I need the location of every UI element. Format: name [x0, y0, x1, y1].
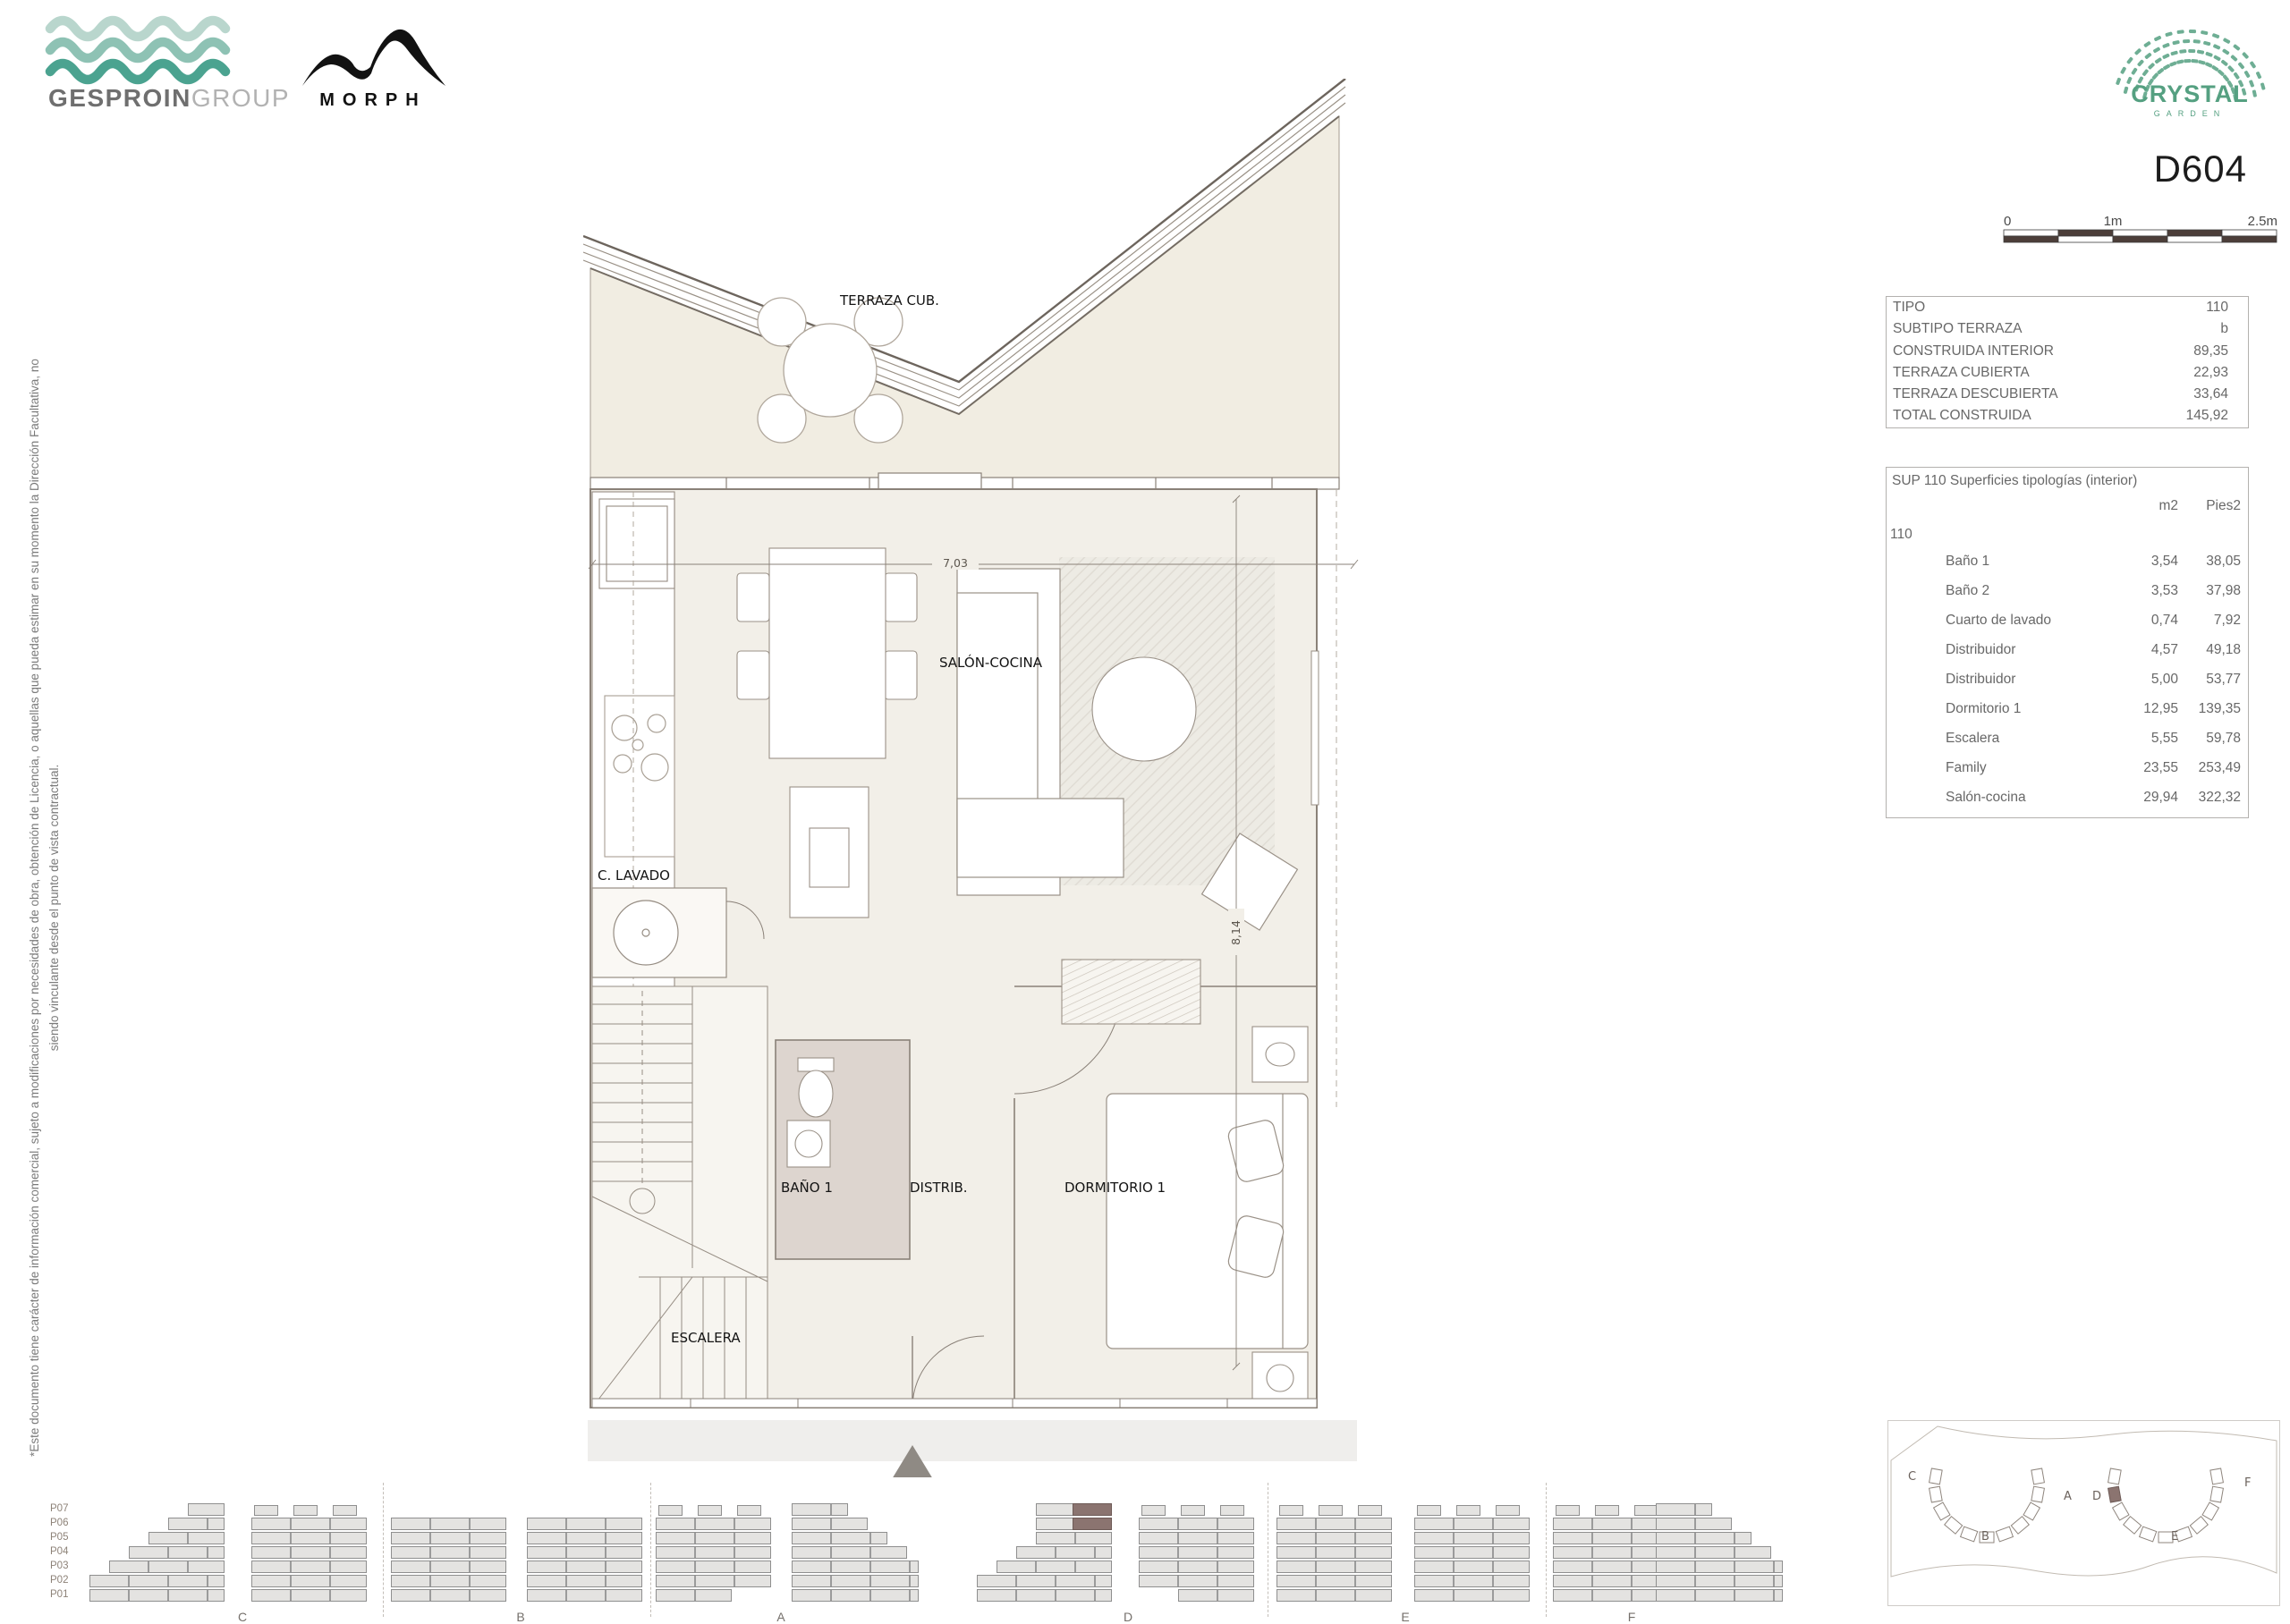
site-building-block — [2011, 1517, 2029, 1534]
elevation-cell — [656, 1589, 732, 1602]
dome-lattice-diamond — [2237, 62, 2244, 70]
elevation-cell — [1656, 1575, 1783, 1587]
elevation-cell — [656, 1518, 771, 1530]
elevation-cell — [1276, 1561, 1392, 1573]
elevation-cell — [1414, 1589, 1530, 1602]
label-distrib: DISTRIB. — [910, 1180, 968, 1196]
wardrobe-icon — [1062, 960, 1200, 1024]
areas-m2: 0,74 — [2096, 613, 2178, 629]
elevation-cell — [658, 1505, 683, 1516]
block-group-label: F — [1628, 1610, 1636, 1624]
block-separator — [383, 1483, 384, 1617]
elevation-cell — [251, 1518, 367, 1530]
elevation-cell — [391, 1561, 506, 1573]
dome-lattice-diamond — [2170, 50, 2178, 55]
elevation-cell — [89, 1589, 225, 1602]
site-building-block — [2210, 1486, 2224, 1502]
elevation-cell — [168, 1518, 225, 1530]
elevation-cell — [1556, 1505, 1580, 1516]
summary-value: 110 — [2112, 297, 2248, 318]
elevation-cell — [1139, 1561, 1254, 1573]
dome-lattice-diamond — [2201, 30, 2209, 35]
site-building-block — [2108, 1468, 2122, 1484]
site-building-block — [1930, 1468, 1943, 1484]
summary-row: TOTAL CONSTRUIDA145,92 — [1887, 405, 2248, 427]
elevation-cell — [1414, 1518, 1530, 1530]
elevation-cell — [251, 1561, 367, 1573]
gesproin-waves-icon — [50, 21, 225, 80]
site-building-block — [2202, 1502, 2218, 1520]
block-separator — [650, 1483, 651, 1617]
dome-lattice-diamond — [2163, 63, 2171, 70]
plan-shadow — [588, 1420, 1357, 1461]
summary-label: TOTAL CONSTRUIDA — [1887, 405, 2112, 427]
elevation-cell — [1414, 1546, 1530, 1559]
elevation-cell — [527, 1532, 642, 1544]
label-bano: BAÑO 1 — [781, 1179, 833, 1196]
areas-col-m2: m2 — [2096, 498, 2178, 514]
label-terraza: TERRAZA CUB. — [839, 292, 939, 309]
summary-value: 145,92 — [2112, 405, 2248, 427]
areas-room-name: Escalera — [1946, 731, 2096, 747]
elevation-cell — [977, 1589, 1112, 1602]
dome-lattice-diamond — [2137, 59, 2144, 67]
scale-segments — [2004, 230, 2277, 242]
elevation-cell — [656, 1546, 771, 1559]
dome-lattice-diamond — [2154, 35, 2162, 41]
elevation-cell — [1414, 1532, 1530, 1544]
elevation-cell — [792, 1546, 907, 1559]
dome-lattice-diamond — [2213, 55, 2221, 61]
crystal-subname: GARDEN — [2154, 109, 2226, 118]
morph-mountain-icon — [302, 30, 445, 86]
elevation-cell — [1178, 1589, 1254, 1602]
elevation-cell — [698, 1505, 722, 1516]
areas-pies2: 59,78 — [2178, 731, 2248, 747]
summary-row: TIPO110 — [1887, 297, 2248, 318]
block-group-label: D — [1124, 1610, 1132, 1624]
areas-table-header: m2 Pies2 — [1887, 491, 2248, 520]
dome-lattice-diamond — [2162, 53, 2170, 59]
dome-lattice-diamond — [2188, 49, 2195, 53]
site-building-block — [2140, 1527, 2157, 1542]
elevation-cell — [737, 1505, 761, 1516]
elevation-cell — [792, 1561, 919, 1573]
toilet-icon — [798, 1058, 834, 1117]
areas-pies2: 49,18 — [2178, 642, 2248, 658]
floor-label: P04 — [50, 1546, 68, 1557]
areas-col-pies2: Pies2 — [2178, 498, 2248, 514]
areas-room-name: Baño 2 — [1946, 583, 2096, 599]
areas-room-name: Baño 1 — [1946, 554, 2096, 570]
elevation-cell — [527, 1589, 642, 1602]
elevation-cell — [1417, 1505, 1441, 1516]
site-highlighted-unit — [2108, 1486, 2122, 1502]
dome-lattice-diamond — [2205, 52, 2213, 57]
dome-lattice-diamond — [2260, 82, 2266, 90]
block-group-label: B — [516, 1610, 524, 1624]
elevation-cell — [391, 1546, 506, 1559]
elevation-cell — [977, 1575, 1112, 1587]
site-block-label: A — [2064, 1490, 2072, 1503]
dome-lattice-diamond — [2176, 59, 2184, 64]
summary-value: 33,64 — [2112, 384, 2248, 405]
dome-lattice-diamond — [2154, 57, 2162, 64]
elevation-cell — [1496, 1505, 1520, 1516]
elevation-cell — [656, 1532, 771, 1544]
summary-value: 89,35 — [2112, 341, 2248, 362]
dome-lattice-diamond — [2183, 39, 2190, 43]
elevation-cell — [391, 1532, 506, 1544]
floor-label: P07 — [50, 1503, 68, 1514]
areas-row: Dormitorio 112,95139,35 — [1887, 694, 2248, 723]
summary-label: TERRAZA CUBIERTA — [1887, 362, 2112, 384]
site-labels: CBADEF — [1908, 1470, 2251, 1544]
elevation-cell — [1358, 1505, 1382, 1516]
elevation-cell — [792, 1589, 919, 1602]
elevation-cell — [1220, 1505, 1244, 1516]
elevation-cell — [527, 1575, 642, 1587]
elevation-cell — [527, 1518, 642, 1530]
highlighted-unit-cell — [1073, 1518, 1112, 1530]
elevation-cell — [1553, 1532, 1668, 1544]
label-salon: SALÓN-COCINA — [939, 654, 1043, 671]
elevation-cell — [1656, 1561, 1783, 1573]
highlighted-unit-cell — [1073, 1503, 1112, 1516]
elevation-cell — [1656, 1503, 1712, 1516]
dome-lattice-diamond — [2249, 80, 2255, 88]
dome-lattice-diamond — [2233, 44, 2241, 51]
unit-code: D604 — [2154, 148, 2247, 190]
elevation-cell — [1553, 1575, 1668, 1587]
elevation-cell — [1139, 1532, 1254, 1544]
elevation-cell — [1414, 1561, 1530, 1573]
site-building-block — [1934, 1502, 1950, 1520]
summary-row: TERRAZA CUBIERTA22,93 — [1887, 362, 2248, 384]
elevation-cell — [792, 1532, 887, 1544]
dome-lattice-diamond — [2142, 69, 2149, 77]
areas-unit-group: 110 — [1887, 520, 2248, 546]
coffee-table-icon — [1092, 657, 1196, 761]
elevation-cell — [391, 1589, 506, 1602]
disclaimer-line1: *Este documento tiene carácter de inform… — [25, 201, 45, 1614]
site-building-block — [2124, 1517, 2142, 1534]
elevation-cell — [1276, 1575, 1392, 1587]
dome-lattice-diamond — [2134, 48, 2142, 55]
label-dormitorio: DORMITORIO 1 — [1064, 1180, 1166, 1196]
floor-label: P01 — [50, 1589, 68, 1600]
areas-m2: 3,53 — [2096, 583, 2178, 599]
elevation-cell — [527, 1546, 642, 1559]
dome-lattice-diamond — [2184, 59, 2191, 63]
dome-lattice-diamond — [2124, 86, 2129, 94]
dome-lattice-diamond — [2212, 33, 2220, 38]
dome-lattice-diamond — [2230, 55, 2238, 62]
summary-label: TERRAZA DESCUBIERTA — [1887, 384, 2112, 405]
dim-width: 7,03 — [943, 556, 968, 570]
elevation-cell — [293, 1505, 318, 1516]
dome-lattice-diamond — [2222, 48, 2230, 55]
summary-label: SUBTIPO TERRAZA — [1887, 318, 2112, 340]
areas-m2: 23,55 — [2096, 760, 2178, 776]
dome-lattice-diamond — [2220, 59, 2228, 66]
crystal-name: CRYSTAL — [2131, 80, 2249, 107]
site-block-label: B — [1981, 1530, 1989, 1544]
dome-lattice-diamond — [2169, 61, 2177, 67]
scale-2-5m: 2.5m — [2248, 215, 2277, 229]
elevation-cell — [251, 1589, 367, 1602]
elevation-cell — [1553, 1546, 1668, 1559]
areas-room-name: Family — [1946, 760, 2096, 776]
dome-lattice-diamond — [2213, 44, 2221, 50]
elevation-cell — [1456, 1505, 1480, 1516]
elevation-cell — [188, 1503, 225, 1516]
morph-logo: MORPH — [295, 14, 452, 114]
dome-lattice-diamond — [2227, 65, 2235, 73]
elevation-cell — [89, 1575, 225, 1587]
dome-lattice-diamond — [2203, 41, 2211, 47]
floor-label: P02 — [50, 1575, 68, 1586]
site-building-block — [1961, 1527, 1978, 1542]
elevation-cell — [129, 1546, 225, 1559]
areas-table-title: SUP 110 Superficies tipologías (interior… — [1887, 468, 2248, 491]
dome-lattice-diamond — [2191, 59, 2198, 63]
areas-m2: 4,57 — [2096, 642, 2178, 658]
site-building-block — [2113, 1502, 2129, 1520]
elevation-cell — [1276, 1546, 1392, 1559]
elevation-cell — [527, 1561, 642, 1573]
summary-row: TERRAZA DESCUBIERTA33,64 — [1887, 384, 2248, 405]
dome-lattice-diamond — [2252, 89, 2258, 97]
areas-row: Escalera5,5559,78 — [1887, 723, 2248, 753]
elevation-cell — [391, 1518, 506, 1530]
dome-lattice-diamond — [2197, 49, 2205, 54]
elevation-cell — [251, 1532, 367, 1544]
elevation-cell — [1276, 1589, 1392, 1602]
elevation-cell — [1279, 1505, 1303, 1516]
floor-label: P05 — [50, 1532, 68, 1543]
elevation-cell — [656, 1561, 771, 1573]
laundry-room — [592, 888, 726, 977]
block-separator — [1546, 1483, 1547, 1617]
summary-row: CONSTRUIDA INTERIOR89,35 — [1887, 341, 2248, 362]
areas-room-name: Cuarto de lavado — [1946, 613, 2096, 629]
elevation-cell — [1276, 1532, 1392, 1544]
elevation-cell — [1141, 1505, 1166, 1516]
site-map: CBADEF — [1887, 1420, 2280, 1606]
dome-lattice-diamond — [2179, 49, 2186, 54]
elevation-cell — [1595, 1505, 1619, 1516]
elevation-cell — [1139, 1518, 1254, 1530]
site-building-block — [2031, 1468, 2045, 1484]
elevation-cell — [792, 1503, 848, 1516]
dome-lattice-diamond — [2250, 61, 2257, 69]
site-block-label: C — [1908, 1470, 1916, 1484]
disclaimer: *Este documento tiene carácter de inform… — [25, 201, 82, 1614]
areas-m2: 29,94 — [2096, 790, 2178, 806]
dome-lattice-diamond — [2176, 30, 2184, 34]
elevation-cell — [1276, 1518, 1392, 1530]
site-building-block — [2210, 1468, 2224, 1484]
summary-label: CONSTRUIDA INTERIOR — [1887, 341, 2112, 362]
dome-lattice-diamond — [2211, 65, 2219, 72]
elevation-cell — [1319, 1505, 1343, 1516]
elevations: P07P06P05P04P03P02P01CBADEF — [0, 1476, 1879, 1619]
elevation-cell — [148, 1532, 225, 1544]
areas-row: Distribuidor4,5749,18 — [1887, 635, 2248, 664]
site-building-block — [1945, 1517, 1963, 1534]
site-building-block — [1996, 1527, 2013, 1542]
dome-lattice-diamond — [2198, 60, 2206, 65]
summary-row: SUBTIPO TERRAZAb — [1887, 318, 2248, 340]
elevation-cell — [1656, 1546, 1771, 1559]
areas-pies2: 38,05 — [2178, 554, 2248, 570]
block-group-label: C — [238, 1610, 247, 1624]
site-building-block — [2023, 1502, 2040, 1520]
elevation-cell — [1181, 1505, 1205, 1516]
site-block-label: F — [2244, 1476, 2251, 1490]
elevation-cell — [1139, 1546, 1254, 1559]
gesproin-name: GESPROINGROUP — [48, 84, 290, 112]
elevation-cell — [1139, 1575, 1254, 1587]
window-right — [1311, 651, 1319, 805]
areas-row: Cuarto de lavado0,747,92 — [1887, 605, 2248, 635]
elevation-cell — [109, 1561, 225, 1573]
elevation-cell — [792, 1575, 919, 1587]
dome-lattice-diamond — [2165, 31, 2173, 37]
areas-table: SUP 110 Superficies tipologías (interior… — [1886, 467, 2249, 818]
dome-lattice-diamond — [2242, 52, 2249, 60]
elevation-cell — [251, 1575, 367, 1587]
elevation-cell — [1036, 1532, 1112, 1544]
elevation-cell — [1656, 1589, 1783, 1602]
elevation-cell — [1553, 1518, 1668, 1530]
areas-pies2: 253,49 — [2178, 760, 2248, 776]
areas-m2: 12,95 — [2096, 701, 2178, 717]
crystal-garden-logo: CRYSTAL GARDEN — [2109, 13, 2270, 132]
areas-pies2: 53,77 — [2178, 672, 2248, 688]
site-building-block — [1930, 1486, 1943, 1502]
floor-plan: TERRAZA CUB. C. LAVADO — [583, 79, 1365, 1477]
elevation-cell — [254, 1505, 278, 1516]
site-block-label: E — [2171, 1530, 2178, 1544]
dome-lattice-diamond — [2233, 72, 2240, 80]
dome-lattice-diamond — [2131, 67, 2138, 75]
areas-row: Baño 23,5337,98 — [1887, 576, 2248, 605]
floor-label: P06 — [50, 1518, 68, 1528]
elevation-cell — [1016, 1546, 1112, 1559]
areas-row: Family23,55253,49 — [1887, 753, 2248, 782]
areas-row: Salón-cocina29,94322,32 — [1887, 782, 2248, 812]
label-lavado: C. LAVADO — [598, 867, 670, 884]
elevation-cell — [792, 1518, 868, 1530]
scale-1m: 1m — [2104, 215, 2123, 229]
dome-lattice-diamond — [2189, 30, 2196, 33]
elevation-cell — [1414, 1575, 1530, 1587]
areas-room-name: Distribuidor — [1946, 642, 2096, 658]
areas-pies2: 7,92 — [2178, 613, 2248, 629]
elevation-cell — [1634, 1505, 1658, 1516]
dome-lattice-diamond — [2126, 56, 2133, 64]
dim-height: 8,14 — [1229, 920, 1243, 945]
scale-0: 0 — [2004, 215, 2011, 229]
areas-m2: 3,54 — [2096, 554, 2178, 570]
summary-value: b — [2112, 318, 2248, 340]
areas-room-name: Dormitorio 1 — [1946, 701, 2096, 717]
dome-lattice-diamond — [2143, 41, 2151, 48]
dome-lattice-diamond — [2223, 38, 2231, 44]
summary-value: 22,93 — [2112, 362, 2248, 384]
areas-pies2: 37,98 — [2178, 583, 2248, 599]
areas-room-name: Salón-cocina — [1946, 790, 2096, 806]
elevation-cell — [1553, 1589, 1668, 1602]
floor-label: P03 — [50, 1561, 68, 1571]
site-building-block — [2031, 1486, 2045, 1502]
block-separator — [1268, 1483, 1268, 1617]
block-group-label: A — [776, 1610, 785, 1624]
site-block-label: D — [2092, 1490, 2101, 1503]
elevation-cell — [997, 1561, 1112, 1573]
areas-pies2: 322,32 — [2178, 790, 2248, 806]
dome-lattice-diamond — [2120, 66, 2126, 74]
summary-table: TIPO110SUBTIPO TERRAZAbCONSTRUIDA INTERI… — [1886, 296, 2249, 428]
elevation-cell — [1656, 1532, 1751, 1544]
areas-room-name: Distribuidor — [1946, 672, 2096, 688]
elevation-cell — [656, 1575, 771, 1587]
elevation-cell — [1656, 1518, 1732, 1530]
gesproin-logo: GESPROINGROUP — [41, 14, 301, 117]
elevation-cell — [251, 1546, 367, 1559]
areas-row: Distribuidor5,0053,77 — [1887, 664, 2248, 694]
block-group-label: E — [1401, 1610, 1409, 1624]
dome-lattice-diamond — [2256, 72, 2262, 80]
dome-lattice-diamond — [2153, 47, 2161, 53]
bed-icon — [1107, 1094, 1308, 1349]
label-escalera: ESCALERA — [671, 1330, 741, 1346]
bottom-windows — [592, 1399, 1317, 1408]
dome-lattice-diamond — [2172, 40, 2180, 46]
site-building-block — [2190, 1517, 2208, 1534]
summary-label: TIPO — [1887, 297, 2112, 318]
dome-lattice-diamond — [2243, 71, 2250, 79]
sink-icon — [787, 1121, 830, 1167]
areas-m2: 5,55 — [2096, 731, 2178, 747]
elevation-cell — [391, 1575, 506, 1587]
dome-lattice-diamond — [2205, 62, 2213, 68]
scale-bar: 0 1m 2.5m — [2002, 215, 2281, 250]
elevation-cell — [1553, 1561, 1668, 1573]
dome-lattice-diamond — [2144, 52, 2152, 59]
dome-lattice-diamond — [2162, 43, 2170, 49]
elevation-cell — [333, 1505, 357, 1516]
dome-lattice-diamond — [2148, 63, 2156, 70]
areas-row: Baño 13,5438,05 — [1887, 546, 2248, 576]
disclaimer-line2: siendo vinculante desde el punto de vist… — [45, 201, 64, 1614]
areas-pies2: 139,35 — [2178, 701, 2248, 717]
dome-lattice-diamond — [2193, 39, 2201, 44]
areas-m2: 5,00 — [2096, 672, 2178, 688]
site-blocks — [1930, 1468, 2224, 1543]
morph-name: MORPH — [319, 90, 426, 110]
dome-lattice-diamond — [2116, 77, 2121, 85]
